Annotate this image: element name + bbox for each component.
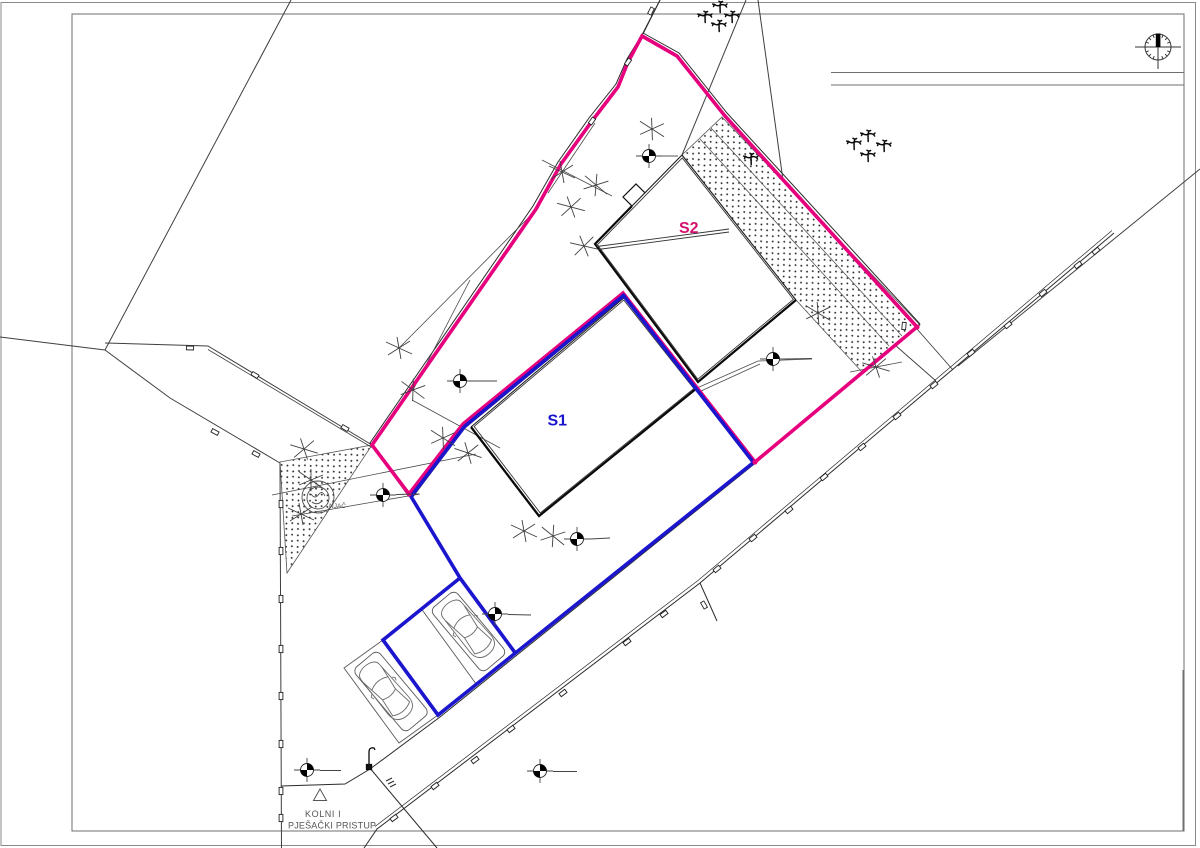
svg-text:S1: S1	[548, 413, 568, 430]
svg-text:S2: S2	[679, 220, 699, 237]
svg-text:NJAČ: NJAČ	[329, 501, 346, 510]
svg-text:PJEŠAČKI PRISTUP: PJEŠAČKI PRISTUP	[288, 821, 376, 831]
svg-text:KOLNI I: KOLNI I	[305, 809, 341, 819]
